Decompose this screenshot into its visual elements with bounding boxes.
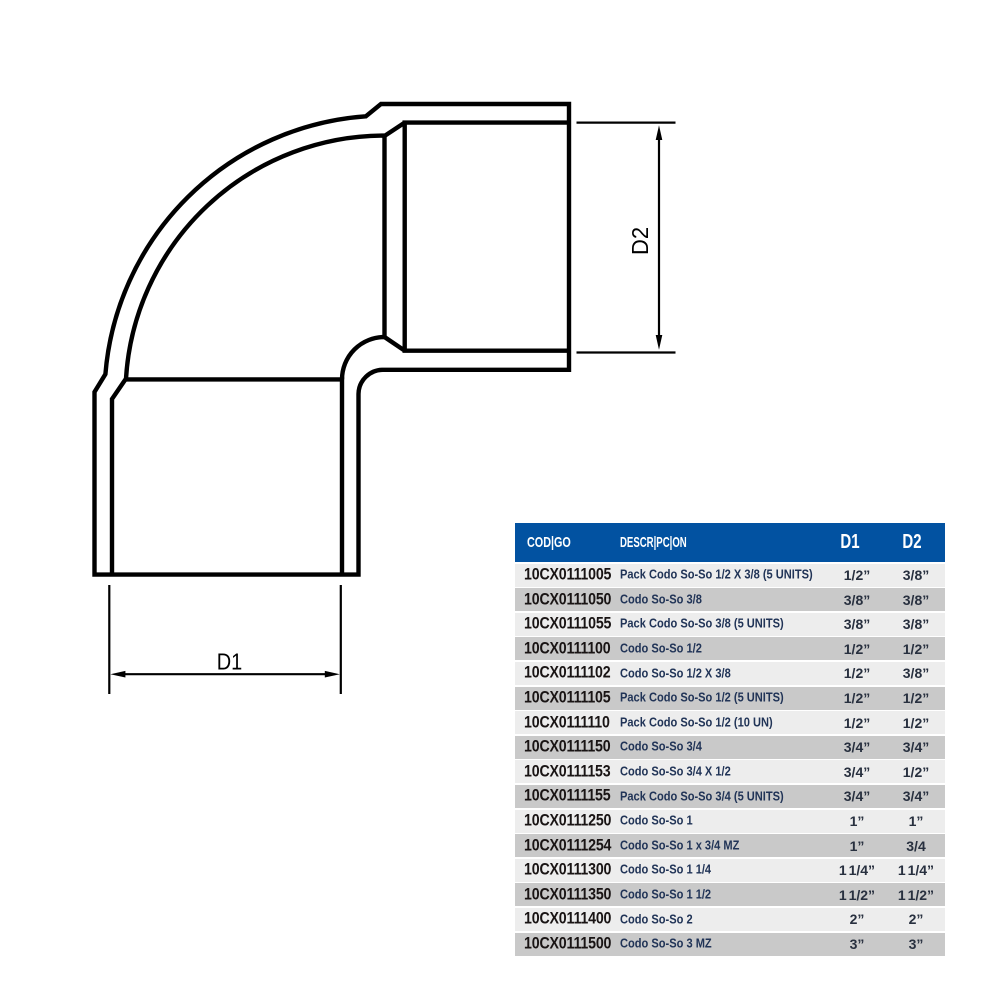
svg-text:D1: D1 (217, 649, 243, 675)
svg-text:D2: D2 (627, 227, 653, 255)
